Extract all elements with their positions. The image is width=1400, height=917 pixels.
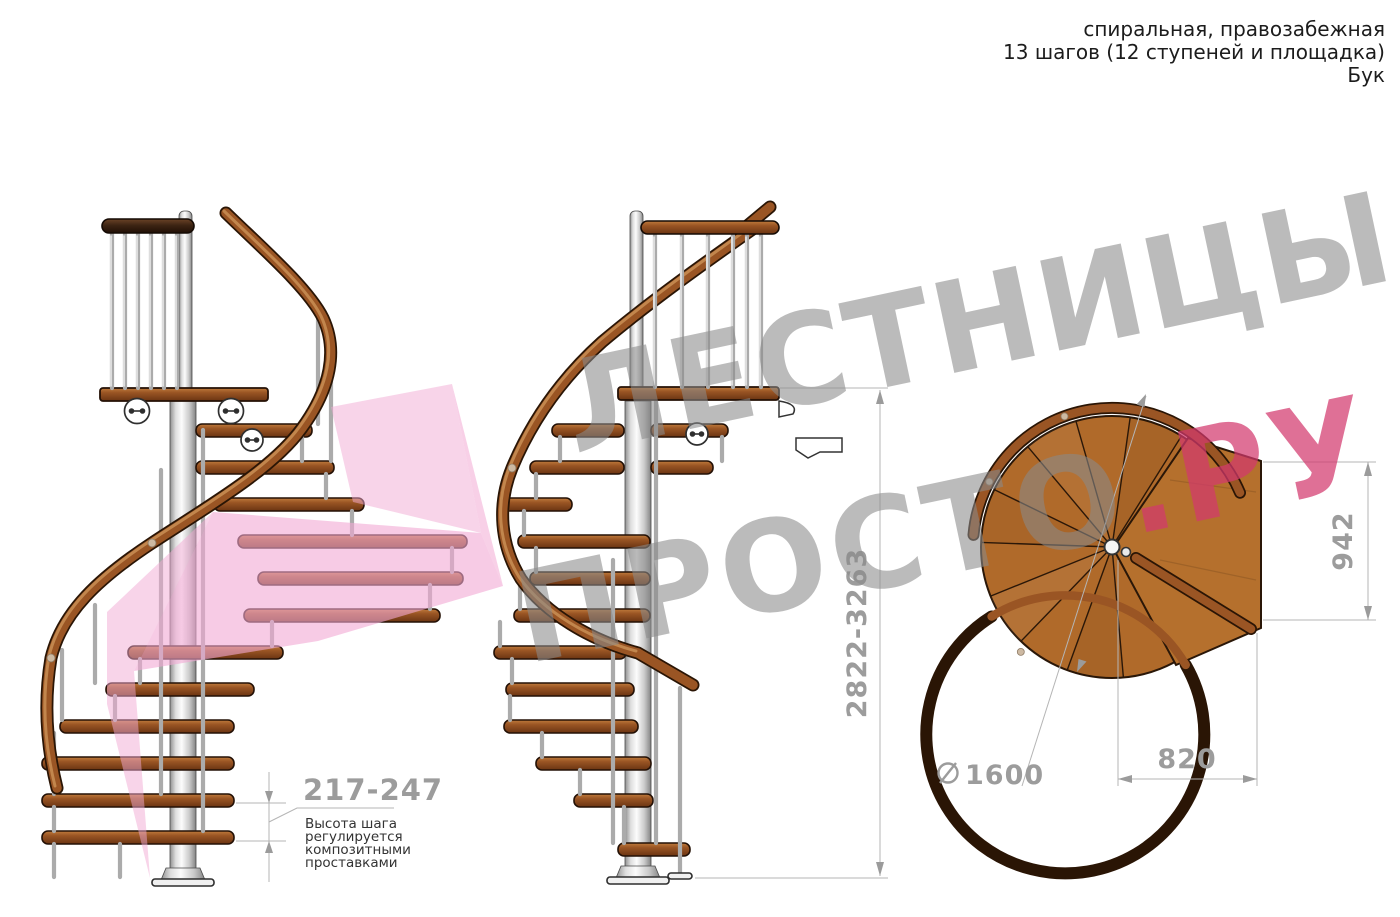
material: Бук [1003,64,1385,87]
rail-post-plan [1122,548,1131,557]
dimension-step-height: 217-247 Высота шага регулируется компози… [236,772,443,882]
center-pole-plan [1105,540,1120,555]
step-count: 13 шагов (12 ступеней и площадка) [1003,41,1385,64]
diameter-symbol [939,763,958,783]
handrail-joint [148,539,156,547]
diameter-value: 1600 [965,760,1044,791]
wall-bracket [779,401,794,417]
landing-depth-value: 942 [1328,511,1359,570]
platform-handrail-dark [102,219,194,233]
title-block: спиральная, правозабежная 13 шагов (12 с… [1003,18,1385,87]
staircase-drawing: 217-247 Высота шага регулируется компози… [0,0,1400,917]
side-view-side [494,207,842,884]
center-post-upper [179,211,192,401]
platform-handrail [641,221,779,234]
total-height-value: 2822-3263 [842,548,873,719]
stair-type: спиральная, правозабежная [1003,18,1385,41]
svg-text:проставками: проставками [305,855,398,871]
pole-base-plate [152,879,214,886]
dimension-landing-depth: 942 [1263,462,1376,620]
landing-width-value: 820 [1157,744,1216,775]
post-foot [668,873,692,879]
wall-bracket [796,438,842,458]
step-height-note: Высота шага регулируется композитными пр… [305,816,411,871]
handrail-joint [508,464,516,472]
drawing-sheet: 217-247 Высота шага регулируется компози… [0,0,1400,917]
platform-balusters [111,233,177,388]
platform-balusters [654,234,761,387]
plan-view [926,408,1261,873]
pole-base-plate [607,877,669,884]
handrail-joint [47,654,55,662]
step-height-value: 217-247 [303,773,443,807]
